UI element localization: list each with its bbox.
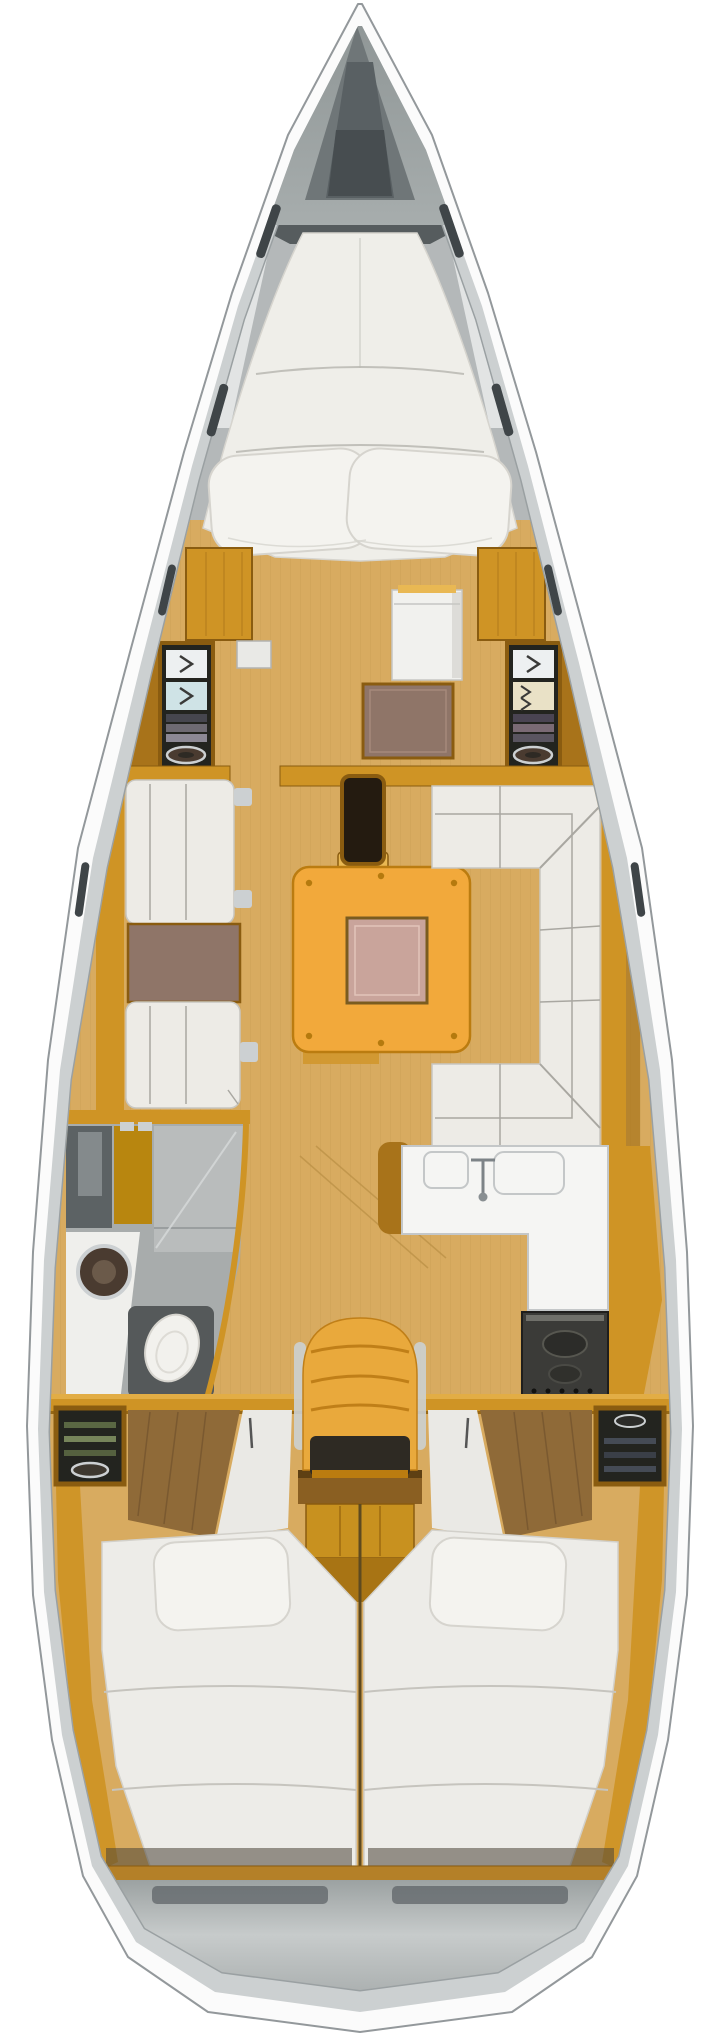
- door-panel: [237, 641, 271, 668]
- port-shelf-locker: [160, 643, 213, 768]
- head-top-rail: [66, 1110, 250, 1124]
- table-inset: [347, 918, 427, 1003]
- nav-seat: [294, 1318, 426, 1478]
- stove: [522, 1312, 608, 1398]
- forward-bulkhead-starboard: [280, 766, 608, 786]
- transom-slot: [392, 1886, 568, 1904]
- port-aft-locker: [56, 1408, 124, 1484]
- dresser-panel: [363, 684, 453, 758]
- v-berth-pillow-starboard: [345, 446, 514, 557]
- mast-post: [338, 776, 388, 872]
- starboard-wardrobe: [478, 548, 545, 640]
- basin-bowl-icon: [615, 1415, 645, 1427]
- port-aft-pillow: [153, 1537, 291, 1632]
- saloon-table: [293, 867, 470, 1064]
- head-sink-inner: [92, 1260, 116, 1284]
- stove-handle: [526, 1315, 604, 1321]
- bow-deck: [250, 10, 470, 225]
- port-side-table: [128, 924, 240, 1002]
- berth-foot-shadow: [368, 1848, 614, 1868]
- settee-bracket: [234, 890, 252, 908]
- fridge-cabinet: [392, 585, 462, 680]
- shower-stall-inner: [78, 1132, 102, 1196]
- starboard-aft-locker: [596, 1408, 664, 1484]
- starboard-aft-pillow: [429, 1537, 567, 1632]
- boat-floor-plan: [0, 0, 720, 2043]
- hinge: [138, 1122, 152, 1131]
- port-settee-upper: [126, 780, 234, 924]
- interior: [40, 0, 680, 2001]
- hinge: [120, 1122, 134, 1131]
- anchor-locker-inner: [328, 130, 392, 196]
- basin-bowl-icon: [72, 1463, 108, 1477]
- settee-bracket: [240, 1042, 258, 1062]
- berth-foot-shadow: [106, 1848, 352, 1868]
- shower-wood-column: [114, 1126, 152, 1224]
- starboard-shelf-locker: [507, 643, 560, 768]
- port-settee-lower: [126, 1002, 240, 1108]
- floor-plan-canvas: [0, 0, 720, 2043]
- settee-bracket: [234, 788, 252, 806]
- transom-slot: [152, 1886, 328, 1904]
- nav-seat-lip: [312, 1470, 408, 1478]
